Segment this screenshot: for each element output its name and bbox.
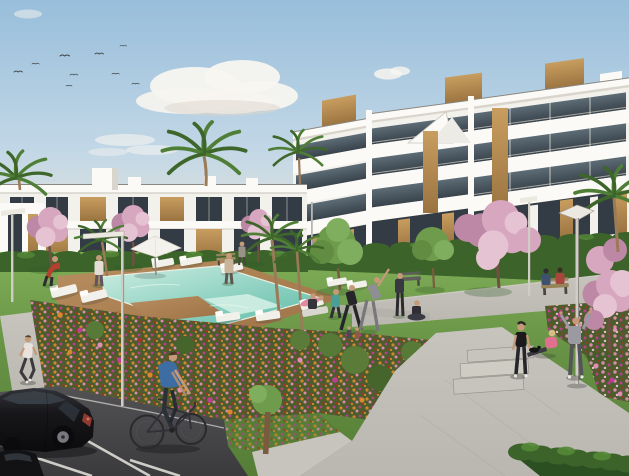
cloud-tiny xyxy=(14,10,42,19)
roof-box xyxy=(128,177,141,187)
architectural-render: architectural_render xyxy=(0,0,629,476)
wood-pillar xyxy=(492,108,508,213)
dog-head xyxy=(537,346,541,350)
wood-pillar xyxy=(423,131,438,213)
roof-box xyxy=(246,178,258,187)
small-tree-crown xyxy=(249,385,267,403)
render-canvas: architectural_render xyxy=(0,0,629,476)
